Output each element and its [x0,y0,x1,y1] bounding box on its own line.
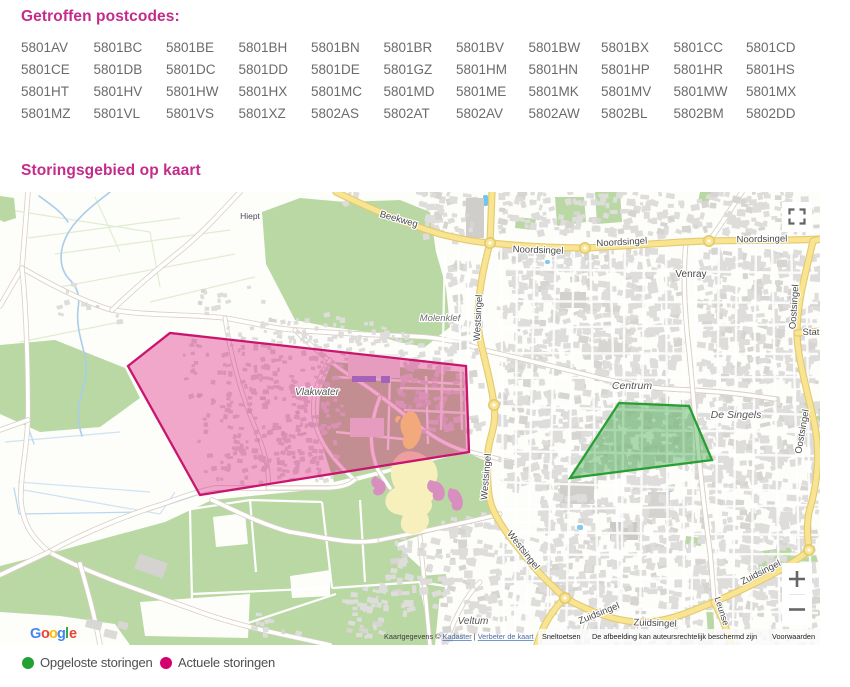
svg-text:Stati: Stati [802,327,820,338]
svg-text:Molenklef: Molenklef [420,313,462,324]
svg-text:Voorwaarden: Voorwaarden [772,632,815,641]
svg-text:Vlakwater: Vlakwater [295,387,340,398]
svg-text:Sneltoetsen: Sneltoetsen [542,632,581,641]
svg-text:Kaartgegevens © Kadaster | Ver: Kaartgegevens © Kadaster | Verbeter de k… [384,632,534,641]
svg-text:G: G [30,626,41,642]
svg-text:e: e [69,626,77,642]
svg-text:Noordsingel: Noordsingel [737,234,788,246]
svg-text:Venray: Venray [675,269,706,280]
svg-text:Hiept: Hiept [240,211,260,221]
svg-text:De Singels: De Singels [711,409,763,421]
svg-text:Noordsingel: Noordsingel [513,244,564,257]
svg-text:De afbeelding kan auteursrecht: De afbeelding kan auteursrechtelijk besc… [592,632,757,641]
svg-text:Centrum: Centrum [612,380,653,392]
svg-text:Veltum: Veltum [458,616,489,627]
svg-text:Zuidsingel: Zuidsingel [633,617,677,630]
